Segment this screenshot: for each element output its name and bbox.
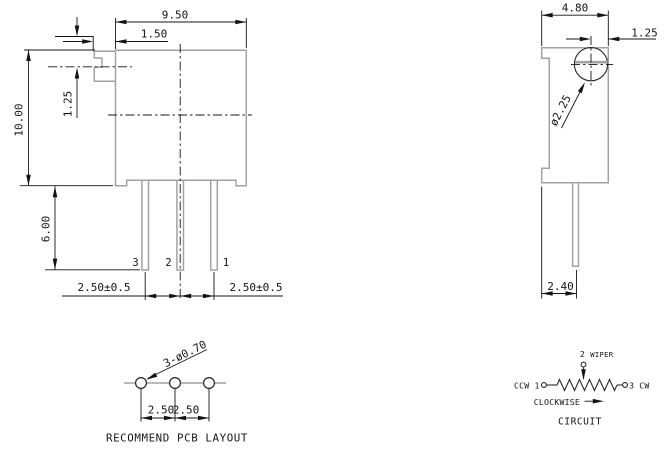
dim-text-pin-row-offset: 2.40: [547, 280, 574, 293]
pcb-hole-3: [204, 378, 215, 389]
arrowhead: [75, 26, 80, 37]
dim-text-body-width: 9.50: [162, 9, 189, 22]
circuit-schematic: 2 WIPER CCW 1 3 CW CLOCKWISE CIRCUIT: [514, 349, 650, 427]
pin-label-2: 2: [165, 257, 171, 269]
cw-terminal-label: 3 CW: [629, 380, 650, 390]
technical-drawing-trimmer-potentiometer: 9.50 1.50 1.25 10.00: [0, 0, 672, 450]
arrowhead: [597, 13, 608, 18]
dim-slot-offset: 1.25: [62, 68, 80, 119]
wiper-label: WIPER: [590, 350, 614, 359]
front-pin-3: [142, 180, 149, 270]
arrowhead: [169, 294, 180, 299]
dim-text-pin-length: 6.00: [40, 216, 53, 243]
arrowhead: [203, 294, 214, 299]
dim-text-body-height: 10.00: [13, 103, 26, 136]
dim-body-width: 9.50: [116, 9, 247, 50]
drawing-canvas: 9.50 1.50 1.25 10.00: [0, 0, 672, 450]
terminal-3-node: [623, 383, 628, 388]
dim-pin-pitch: 2.50±0.5 2.50±0.5: [62, 272, 283, 300]
dim-text-hole-pitch-left: 2.50: [148, 404, 175, 417]
arrowhead: [26, 50, 31, 61]
dim-text-hole-pitch-right: 2.50: [173, 404, 200, 417]
arrowhead: [608, 37, 619, 42]
clockwise-label: CLOCKWISE: [534, 397, 580, 407]
circuit-caption: CIRCUIT: [558, 416, 602, 427]
resistor-zigzag: [557, 380, 617, 391]
pcb-layout-caption: RECOMMEND PCB LAYOUT: [106, 432, 248, 445]
dim-text-screw-boss-width: 1.50: [141, 28, 168, 41]
ccw-terminal-label: CCW 1: [514, 380, 540, 390]
dim-pin-length: 6.00: [40, 186, 141, 270]
dim-text-pin-pitch-right: 2.50±0.5: [230, 281, 283, 294]
arrowhead: [198, 416, 209, 421]
dim-screw-center-offset: 1.25: [566, 27, 658, 42]
arrowhead: [145, 294, 156, 299]
terminal-2-label: 2: [580, 349, 585, 359]
side-pin: [573, 183, 579, 267]
arrowhead: [75, 68, 80, 79]
arrowhead: [580, 37, 591, 42]
arrowhead: [53, 186, 58, 197]
pcb-hole-1: [136, 378, 147, 389]
dim-text-slot-offset: 1.25: [62, 91, 75, 118]
dim-hole-pitch: 2.50 2.50: [141, 389, 209, 422]
front-screw-boss-outline: [94, 51, 115, 81]
pin-label-3: 3: [132, 257, 138, 269]
wiper-arrowhead: [581, 369, 586, 380]
arrowhead: [116, 20, 127, 25]
arrowhead: [82, 39, 93, 44]
pcb-layout: 3-ø0.70 2.50 2.50 RECOMMEND PCB LAYOUT: [106, 338, 248, 445]
clockwise-arrowhead: [593, 399, 604, 404]
dim-pin-row-offset: 2.40: [542, 187, 577, 299]
front-pin-1: [211, 180, 218, 270]
side-view: 4.80 1.25 ø2.25 2.40: [542, 2, 658, 299]
arrowhead: [53, 259, 58, 270]
arrowhead: [542, 13, 553, 18]
pin-label-1: 1: [223, 257, 229, 269]
arrowhead: [26, 175, 31, 186]
dim-text-body-depth: 4.80: [562, 2, 589, 15]
arrowhead: [235, 20, 246, 25]
dim-text-screw-center-offset: 1.25: [631, 27, 658, 40]
terminal-1-node: [542, 383, 547, 388]
front-view: 9.50 1.50 1.25 10.00: [13, 9, 284, 301]
arrowhead: [116, 39, 127, 44]
front-body-outline: [116, 50, 247, 185]
pcb-hole-2: [170, 378, 181, 389]
dim-text-pin-pitch-left: 2.50±0.5: [78, 281, 131, 294]
arrowhead: [180, 294, 191, 299]
terminal-2-node: [581, 362, 586, 367]
dim-text-hole-note: 3-ø0.70: [161, 338, 208, 370]
dim-hole-note: 3-ø0.70: [145, 338, 208, 382]
arrowhead: [145, 373, 157, 382]
